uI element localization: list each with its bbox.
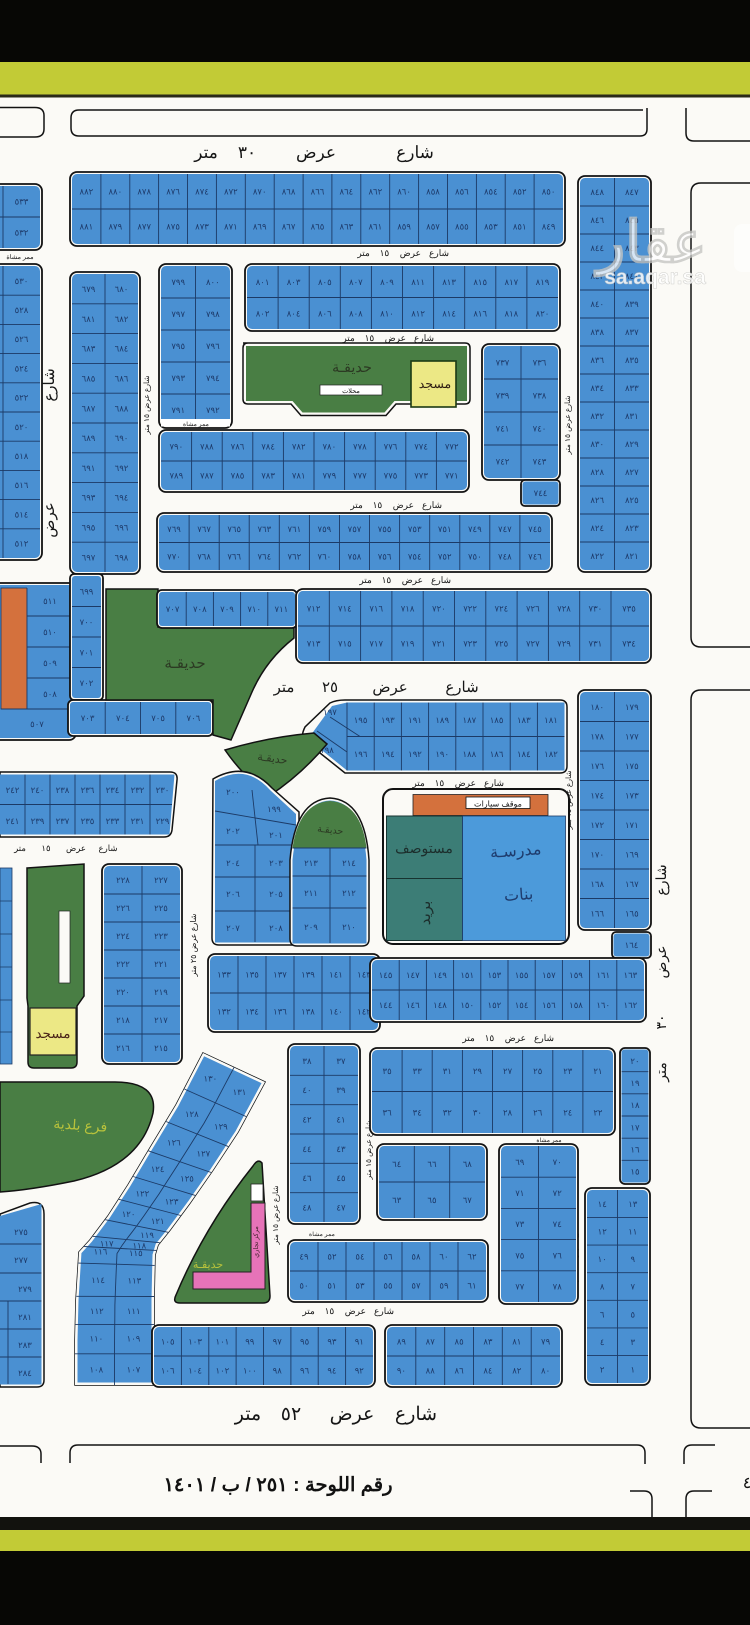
svg-text:١٥: ١٥ (380, 248, 390, 258)
svg-text:١٦٥: ١٦٥ (625, 909, 639, 919)
svg-text:٧٣٠: ٧٣٠ (589, 604, 603, 614)
svg-text:٦٩٤: ٦٩٤ (115, 493, 129, 503)
svg-text:٥٦: ٥٦ (383, 1252, 393, 1262)
svg-text:٧٧٣: ٧٧٣ (414, 471, 428, 481)
svg-text:٢٠٧: ٢٠٧ (226, 923, 240, 933)
svg-text:٢٠٤: ٢٠٤ (226, 858, 240, 868)
svg-text:٧٨٩: ٧٨٩ (169, 471, 183, 481)
svg-text:٧٢٠: ٧٢٠ (432, 604, 446, 614)
svg-text:٩٢: ٩٢ (355, 1366, 365, 1376)
svg-text:حديقـة: حديقـة (193, 1259, 223, 1271)
svg-text:شارع عرض ١٥ متر: شارع عرض ١٥ متر (271, 1185, 280, 1246)
svg-text:ممر مشاة: ممر مشاة (536, 1137, 561, 1144)
svg-text:٨٢٠: ٨٢٠ (536, 309, 550, 319)
svg-text:٢٩: ٢٩ (473, 1066, 483, 1076)
svg-text:٨٥٦: ٨٥٦ (455, 187, 469, 197)
svg-text:١٢٩: ١٢٩ (214, 1122, 228, 1132)
svg-text:٤٢: ٤٢ (302, 1115, 312, 1125)
svg-text:٨٥٥: ٨٥٥ (455, 222, 469, 232)
svg-text:١٠٣: ١٠٣ (188, 1337, 202, 1347)
svg-text:٨١٤: ٨١٤ (442, 309, 456, 319)
svg-text:٥: ٥ (631, 1309, 636, 1319)
svg-text:متر: متر (193, 143, 218, 163)
svg-text:٧٠٣: ٧٠٣ (81, 713, 95, 723)
svg-text:٧١٤: ٧١٤ (338, 604, 352, 614)
svg-text:١٩٦: ١٩٦ (354, 749, 368, 759)
svg-text:عرض: عرض (455, 778, 476, 789)
svg-text:٦٤: ٦٤ (392, 1159, 402, 1169)
svg-text:١١٦: ١١٦ (94, 1247, 108, 1257)
svg-text:٨٦٣: ٨٦٣ (340, 222, 354, 232)
svg-text:٧٨١: ٧٨١ (292, 471, 306, 481)
svg-text:٢٣١: ٢٣١ (131, 816, 145, 826)
svg-text:١٠٢: ١٠٢ (216, 1366, 230, 1376)
svg-text:٧٠٧: ٧٠٧ (166, 604, 180, 614)
svg-text:شارع: شارع (396, 143, 434, 163)
svg-text:١٨٦: ١٨٦ (490, 749, 504, 759)
svg-text:٧٧٨: ٧٧٨ (353, 442, 367, 452)
svg-text:عرض: عرض (345, 1306, 366, 1317)
svg-text:٧٢: ٧٢ (553, 1188, 563, 1198)
svg-text:شارع: شارع (484, 778, 504, 789)
svg-text:١٦٢: ١٦٢ (624, 1000, 638, 1010)
svg-text:موقف سيارات: موقف سيارات (474, 800, 522, 809)
svg-text:٢١٧: ٢١٧ (154, 1015, 168, 1025)
svg-text:٩٠: ٩٠ (397, 1366, 406, 1376)
svg-text:٢١: ٢١ (593, 1066, 602, 1076)
svg-text:حديقـة: حديقـة (332, 360, 372, 376)
svg-text:٧٤٩: ٧٤٩ (468, 524, 482, 534)
svg-text:٦٣: ٦٣ (392, 1195, 402, 1205)
svg-text:شارع: شارع (395, 1404, 437, 1425)
svg-text:عرض: عرض (330, 1404, 375, 1425)
svg-text:٧٩٢: ٧٩٢ (206, 405, 220, 415)
svg-text:٧١٢: ٧١٢ (307, 604, 321, 614)
svg-text:٢٠٢: ٢٠٢ (226, 826, 240, 836)
svg-text:١١٠: ١١٠ (90, 1334, 104, 1344)
svg-text:٨٧٩: ٨٧٩ (108, 222, 122, 232)
svg-text:١٥: ١٥ (382, 575, 392, 585)
svg-text:٥٥: ٥٥ (383, 1281, 393, 1291)
svg-text:٨٠٨: ٨٠٨ (349, 309, 363, 319)
svg-text:٦٨٨: ٦٨٨ (115, 403, 129, 413)
svg-text:محلات: محلات (342, 387, 360, 395)
svg-text:٦٩٩: ٦٩٩ (80, 587, 94, 597)
svg-text:٨٧١: ٨٧١ (224, 222, 238, 232)
svg-text:٧٩٧: ٧٩٧ (171, 309, 185, 319)
svg-text:٢١٥: ٢١٥ (154, 1043, 168, 1053)
svg-text:٨٢٧: ٨٢٧ (625, 467, 639, 477)
svg-text:٢٢٢: ٢٢٢ (116, 959, 130, 969)
svg-text:٦٥: ٦٥ (427, 1195, 437, 1205)
svg-text:٧٦٩: ٧٦٩ (167, 524, 181, 534)
svg-text:٢٥: ٢٥ (322, 679, 338, 696)
svg-text:٨٥٣: ٨٥٣ (484, 222, 498, 232)
svg-text:١٦٨: ١٦٨ (590, 879, 604, 889)
svg-text:٧٧٠: ٧٧٠ (167, 552, 181, 562)
svg-text:٤٥: ٤٥ (336, 1173, 346, 1183)
svg-text:٨٣٩: ٨٣٩ (625, 299, 639, 309)
svg-text:١٦٦: ١٦٦ (590, 909, 604, 919)
svg-text:٨٢١: ٨٢١ (625, 551, 639, 561)
svg-text:١٧٠: ١٧٠ (590, 850, 604, 860)
svg-text:٧٢١: ٧٢١ (432, 639, 446, 649)
svg-text:٣٦: ٣٦ (383, 1108, 393, 1118)
svg-text:٨٥٢: ٨٥٢ (513, 187, 527, 197)
svg-text:٧١٣: ٧١٣ (307, 639, 321, 649)
svg-text:٨١٦: ٨١٦ (473, 309, 487, 319)
svg-text:٥١١: ٥١١ (43, 596, 57, 606)
svg-text:١٩٢: ١٩٢ (408, 749, 422, 759)
svg-text:٧٣٧: ٧٣٧ (496, 358, 510, 368)
svg-text:مدرسـة: مدرسـة (489, 841, 541, 862)
svg-text:٨٩: ٨٩ (397, 1337, 407, 1347)
svg-text:٢٠: ٢٠ (630, 1056, 639, 1066)
svg-text:٧٠٥: ٧٠٥ (151, 713, 165, 723)
svg-text:١٦١: ١٦١ (596, 970, 610, 980)
svg-text:٨٤: ٨٤ (483, 1366, 493, 1376)
svg-text:٥٠٩: ٥٠٩ (43, 658, 57, 668)
svg-text:٦١: ٦١ (467, 1281, 476, 1291)
svg-text:٧٢٤: ٧٢٤ (495, 604, 509, 614)
svg-text:٢٢٣: ٢٢٣ (154, 931, 168, 941)
svg-text:٧٤: ٧٤ (553, 1219, 563, 1229)
svg-text:٧٣١: ٧٣١ (589, 639, 603, 649)
svg-text:٨٠١: ٨٠١ (256, 277, 270, 287)
svg-text:٦٧٩: ٦٧٩ (82, 284, 96, 294)
svg-text:٦٧: ٦٧ (463, 1195, 473, 1205)
svg-text:٥٣: ٥٣ (355, 1281, 365, 1291)
svg-text:٨٥١: ٨٥١ (513, 222, 527, 232)
svg-text:٨٧: ٨٧ (426, 1337, 436, 1347)
svg-text:٦٩٦: ٦٩٦ (115, 523, 129, 533)
svg-text:٥٢٤: ٥٢٤ (15, 363, 29, 373)
svg-text:٤٣: ٤٣ (336, 1144, 346, 1154)
svg-text:٨٧٠: ٨٧٠ (253, 187, 267, 197)
svg-text:٦٨١: ٦٨١ (82, 314, 96, 324)
svg-text:٧٥٤: ٧٥٤ (408, 552, 422, 562)
svg-text:٧٤٢: ٧٤٢ (496, 457, 510, 467)
svg-text:٥١٢: ٥١٢ (15, 539, 29, 549)
svg-text:مركز تجاري: مركز تجاري (252, 1226, 260, 1258)
svg-text:٨٥٨: ٨٥٨ (426, 187, 440, 197)
svg-text:٧٨٠: ٧٨٠ (322, 442, 336, 452)
svg-text:٨٣٥: ٨٣٥ (625, 355, 639, 365)
svg-text:٨٦٢: ٨٦٢ (368, 187, 382, 197)
svg-text:٦٩٠: ٦٩٠ (115, 433, 129, 443)
svg-text:٨٣٣: ٨٣٣ (625, 383, 639, 393)
svg-text:ممر مشاة: ممر مشاة (183, 421, 209, 428)
svg-text:٢٣٩: ٢٣٩ (31, 816, 45, 826)
svg-text:٥٢: ٥٢ (281, 1404, 301, 1425)
svg-text:١٠: ١٠ (598, 1254, 607, 1264)
svg-text:٧١٦: ٧١٦ (369, 604, 383, 614)
svg-text:متر: متر (358, 575, 372, 586)
svg-text:١٥: ١٥ (325, 1306, 335, 1316)
svg-text:٥٣٣: ٥٣٣ (15, 197, 29, 207)
svg-text:٢٣٠: ٢٣٠ (156, 785, 170, 795)
svg-text:٨٤٨: ٨٤٨ (590, 187, 604, 197)
svg-text:١٨٣: ١٨٣ (517, 715, 531, 725)
svg-text:٢٢: ٢٢ (593, 1108, 603, 1118)
svg-text:٧٠١: ٧٠١ (80, 648, 94, 658)
svg-text:١١٣: ١١٣ (128, 1276, 142, 1286)
svg-text:٦٨: ٦٨ (463, 1159, 473, 1169)
svg-text:٢٨٤: ٢٨٤ (18, 1368, 32, 1378)
svg-text:٧٦٥: ٧٦٥ (227, 524, 241, 534)
svg-text:٢٣٦: ٢٣٦ (81, 785, 95, 795)
svg-text:٧١٠: ٧١٠ (247, 604, 261, 614)
svg-text:٣٢: ٣٢ (443, 1108, 453, 1118)
svg-text:١٠٦: ١٠٦ (161, 1366, 175, 1376)
svg-text:٨٠٩: ٨٠٩ (380, 277, 394, 287)
svg-text:١٥٥: ١٥٥ (515, 970, 529, 980)
svg-text:٤: ٤ (743, 1475, 750, 1492)
svg-text:١٠٤: ١٠٤ (188, 1366, 202, 1376)
svg-text:٧٥٦: ٧٥٦ (378, 552, 392, 562)
svg-text:٥٢: ٥٢ (327, 1252, 337, 1262)
svg-text:٢٢٩: ٢٢٩ (156, 816, 170, 826)
svg-text:١٧٦: ١٧٦ (590, 761, 604, 771)
svg-text:٧٦٢: ٧٦٢ (287, 552, 301, 562)
svg-text:٨٣١: ٨٣١ (625, 411, 639, 421)
svg-text:٢١٤: ٢١٤ (342, 858, 356, 868)
svg-text:٨٠: ٨٠ (541, 1366, 550, 1376)
svg-text:٨٦: ٨٦ (455, 1366, 465, 1376)
svg-text:٨٢٣: ٨٢٣ (625, 523, 639, 533)
svg-text:٦٨٣: ٦٨٣ (82, 344, 96, 354)
svg-text:١٤٥: ١٤٥ (379, 970, 393, 980)
svg-text:١٥: ١٥ (365, 333, 375, 343)
svg-text:٨٣٨: ٨٣٨ (590, 327, 604, 337)
svg-text:١٥: ١٥ (630, 1167, 640, 1177)
svg-text:١٨١: ١٨١ (544, 715, 558, 725)
svg-text:٤٠: ٤٠ (302, 1085, 311, 1095)
svg-text:٨٠٦: ٨٠٦ (318, 309, 332, 319)
svg-text:٨١٣: ٨١٣ (442, 277, 456, 287)
svg-text:٥٢٦: ٥٢٦ (15, 334, 29, 344)
svg-text:١٣٣: ١٣٣ (217, 970, 231, 980)
svg-text:٧٣: ٧٣ (515, 1219, 525, 1229)
svg-text:٨١: ٨١ (512, 1337, 521, 1347)
svg-text:٨١٠: ٨١٠ (380, 309, 394, 319)
svg-text:شارع عرض ١٥ متر: شارع عرض ١٥ متر (142, 375, 151, 436)
svg-text:١٣٨: ١٣٨ (301, 1007, 315, 1017)
svg-text:٣٠: ٣٠ (473, 1108, 482, 1118)
svg-text:٦٨٠: ٦٨٠ (115, 284, 129, 294)
svg-text:متر: متر (301, 1306, 315, 1317)
svg-text:٧٢٣: ٧٢٣ (463, 639, 477, 649)
svg-text:٧٦٨: ٧٦٨ (197, 552, 211, 562)
svg-text:٢٠٩: ٢٠٩ (304, 922, 318, 932)
svg-text:متر: متر (234, 1404, 261, 1425)
svg-text:٧٤٨: ٧٤٨ (498, 552, 512, 562)
svg-text:٨٦٧: ٨٦٧ (282, 222, 296, 232)
svg-text:٢٥: ٢٥ (533, 1066, 543, 1076)
svg-text:شارع: شارع (374, 1306, 394, 1317)
svg-text:شارع: شارع (41, 368, 58, 401)
svg-text:١٩٧: ١٩٧ (323, 707, 337, 717)
svg-text:٦٠: ٦٠ (439, 1252, 448, 1262)
svg-text:شارع عرض ٢٥ متر: شارع عرض ٢٥ متر (189, 913, 198, 977)
svg-text:٨٢٦: ٨٢٦ (590, 495, 604, 505)
svg-text:٧٥٥: ٧٥٥ (378, 524, 392, 534)
svg-text:٢٣: ٢٣ (563, 1066, 573, 1076)
svg-text:٥١٦: ٥١٦ (15, 480, 29, 490)
svg-text:٧٨٤: ٧٨٤ (261, 442, 275, 452)
svg-text:٧١٧: ٧١٧ (369, 639, 383, 649)
svg-text:٨٢٨: ٨٢٨ (590, 467, 604, 477)
svg-text:١٣٢: ١٣٢ (217, 1007, 231, 1017)
svg-text:١٧٣: ١٧٣ (625, 791, 639, 801)
svg-text:١٤٤: ١٤٤ (379, 1000, 393, 1010)
svg-text:٧٣٥: ٧٣٥ (622, 604, 636, 614)
svg-text:عرض: عرض (372, 679, 407, 696)
svg-text:٧١١: ٧١١ (275, 604, 289, 614)
svg-text:١٥٠: ١٥٠ (460, 1000, 474, 1010)
svg-text:١٥٢: ١٥٢ (488, 1000, 502, 1010)
svg-text:١٥٦: ١٥٦ (542, 1000, 556, 1010)
svg-text:٢٢٠: ٢٢٠ (116, 987, 130, 997)
svg-text:١٥٨: ١٥٨ (569, 1000, 583, 1010)
svg-text:١٢٢: ١٢٢ (136, 1188, 150, 1198)
svg-text:٧٦٠: ٧٦٠ (318, 552, 332, 562)
svg-text:٨٧٤: ٨٧٤ (195, 187, 209, 197)
svg-text:٦٩١: ٦٩١ (82, 463, 96, 473)
svg-text:٣٧: ٣٧ (336, 1056, 346, 1066)
svg-text:٨١١: ٨١١ (411, 277, 425, 287)
svg-text:٨٨٠: ٨٨٠ (108, 187, 122, 197)
svg-text:٧٤٣: ٧٤٣ (533, 457, 547, 467)
svg-text:١٠٥: ١٠٥ (161, 1337, 175, 1347)
svg-text:٥٨: ٥٨ (411, 1252, 421, 1262)
svg-text:٦٨٦: ٦٨٦ (115, 374, 129, 384)
svg-text:٩: ٩ (631, 1254, 636, 1264)
svg-text:١٩٥: ١٩٥ (354, 715, 368, 725)
svg-text:٥١٠: ٥١٠ (43, 627, 57, 637)
svg-text:شارع: شارع (534, 1033, 554, 1044)
svg-text:٧٤٥: ٧٤٥ (528, 524, 542, 534)
svg-text:٧٧٥: ٧٧٥ (384, 471, 398, 481)
svg-text:٧٧١: ٧٧١ (445, 471, 459, 481)
svg-text:١٥: ١٥ (435, 778, 445, 788)
svg-text:٢١٦: ٢١٦ (116, 1043, 130, 1053)
svg-text:٤٤: ٤٤ (302, 1144, 312, 1154)
svg-text:٨١٧: ٨١٧ (505, 277, 519, 287)
svg-text:١٣١: ١٣١ (233, 1087, 247, 1097)
svg-text:٥٧: ٥٧ (411, 1281, 421, 1291)
svg-text:٧٣٨: ٧٣٨ (533, 391, 547, 401)
svg-text:٥٣٢: ٥٣٢ (15, 228, 29, 238)
svg-text:٧٩١: ٧٩١ (171, 405, 185, 415)
svg-text:عرض: عرض (66, 843, 86, 854)
svg-text:١٨٥: ١٨٥ (490, 715, 504, 725)
svg-text:٦٦: ٦٦ (427, 1159, 437, 1169)
svg-text:٧١٥: ٧١٥ (338, 639, 352, 649)
svg-text:٨١٥: ٨١٥ (473, 277, 487, 287)
svg-text:٥٩: ٥٩ (439, 1281, 449, 1291)
svg-text:٩٤: ٩٤ (327, 1366, 337, 1376)
svg-text:٢٢٦: ٢٢٦ (116, 903, 130, 913)
svg-text:٧٥٨: ٧٥٨ (348, 552, 362, 562)
svg-text:٧١٩: ٧١٩ (401, 639, 415, 649)
svg-text:١٢٠: ١٢٠ (122, 1209, 136, 1219)
svg-text:٨٤٠: ٨٤٠ (590, 299, 604, 309)
svg-text:٨٧٢: ٨٧٢ (224, 187, 238, 197)
svg-text:١٥١: ١٥١ (460, 970, 474, 980)
svg-text:١٣٦: ١٣٦ (273, 1007, 287, 1017)
svg-text:٧٧٦: ٧٧٦ (384, 442, 398, 452)
svg-text:٢٧٧: ٢٧٧ (14, 1255, 28, 1265)
svg-text:١٧٤: ١٧٤ (590, 791, 604, 801)
svg-text:مستوصف: مستوصف (395, 840, 453, 857)
svg-text:٥٠: ٥٠ (299, 1281, 308, 1291)
svg-text:متر: متر (653, 1062, 670, 1082)
svg-text:٧٢٧: ٧٢٧ (526, 639, 540, 649)
svg-text:٢٤٠: ٢٤٠ (31, 785, 45, 795)
svg-text:٧٥١: ٧٥١ (438, 524, 452, 534)
svg-text:٧٣٤: ٧٣٤ (622, 639, 636, 649)
svg-text:١٦٧: ١٦٧ (625, 879, 639, 889)
svg-text:شارع: شارع (653, 864, 670, 895)
svg-text:٨٣٧: ٨٣٧ (625, 327, 639, 337)
svg-text:١٨٢: ١٨٢ (544, 749, 558, 759)
svg-text:٨١٩: ٨١٩ (536, 277, 550, 287)
svg-text:٢١٣: ٢١٣ (304, 858, 318, 868)
svg-text:٦٨٩: ٦٨٩ (82, 433, 96, 443)
svg-text:٦٩٢: ٦٩٢ (115, 463, 129, 473)
svg-text:٧٤٦: ٧٤٦ (528, 552, 542, 562)
svg-text:٢٠٣: ٢٠٣ (269, 858, 283, 868)
svg-text:٨٨١: ٨٨١ (80, 222, 94, 232)
svg-text:٣٩: ٣٩ (336, 1085, 346, 1095)
svg-text:٧٢٩: ٧٢٩ (557, 639, 571, 649)
svg-text:شارع عرض ١٥ متر: شارع عرض ١٥ متر (563, 395, 572, 456)
svg-text:٧٠٨: ٧٠٨ (193, 604, 207, 614)
svg-text:٨٧٦: ٨٧٦ (166, 187, 180, 197)
svg-text:١٢٦: ١٢٦ (167, 1138, 181, 1148)
svg-text:٨٢: ٨٢ (512, 1366, 522, 1376)
svg-text:٨٧٨: ٨٧٨ (137, 187, 151, 197)
svg-text:٨٤٩: ٨٤٩ (542, 222, 556, 232)
svg-text:٧٢٦: ٧٢٦ (526, 604, 540, 614)
svg-text:١١٥: ١١٥ (129, 1248, 143, 1258)
svg-text:١٤٨: ١٤٨ (433, 1000, 447, 1010)
svg-text:٧٥٠: ٧٥٠ (468, 552, 482, 562)
svg-text:٢٢٥: ٢٢٥ (154, 903, 168, 913)
svg-text:٢٢٧: ٢٢٧ (154, 875, 168, 885)
svg-text:١١: ١١ (628, 1227, 637, 1237)
svg-text:٢: ٢ (600, 1364, 605, 1374)
svg-text:١٩٠: ١٩٠ (435, 749, 449, 759)
svg-text:٦٨٧: ٦٨٧ (82, 403, 96, 413)
svg-text:٥١٤: ٥١٤ (15, 509, 29, 519)
svg-text:٨١٨: ٨١٨ (505, 309, 519, 319)
svg-text:١٣٠: ١٣٠ (204, 1074, 218, 1084)
svg-text:٤٩: ٤٩ (299, 1252, 309, 1262)
svg-text:١٦٤: ١٦٤ (625, 940, 639, 950)
svg-text:٢٠٦: ٢٠٦ (226, 889, 240, 899)
svg-text:٧٨٨: ٧٨٨ (200, 442, 214, 452)
svg-text:١١٩: ١١٩ (140, 1230, 154, 1240)
svg-text:١٦٠: ١٦٠ (596, 1000, 610, 1010)
svg-text:٢٣٨: ٢٣٨ (56, 785, 70, 795)
svg-text:٨٠٣: ٨٠٣ (287, 277, 301, 287)
svg-text:رقم اللوحة : ٢٥١ / ب / ١٤٠١: رقم اللوحة : ٢٥١ / ب / ١٤٠١ (163, 1474, 392, 1497)
svg-text:عرض: عرض (41, 502, 58, 537)
svg-text:٩٣: ٩٣ (327, 1337, 337, 1347)
svg-text:٥١٨: ٥١٨ (15, 451, 29, 461)
